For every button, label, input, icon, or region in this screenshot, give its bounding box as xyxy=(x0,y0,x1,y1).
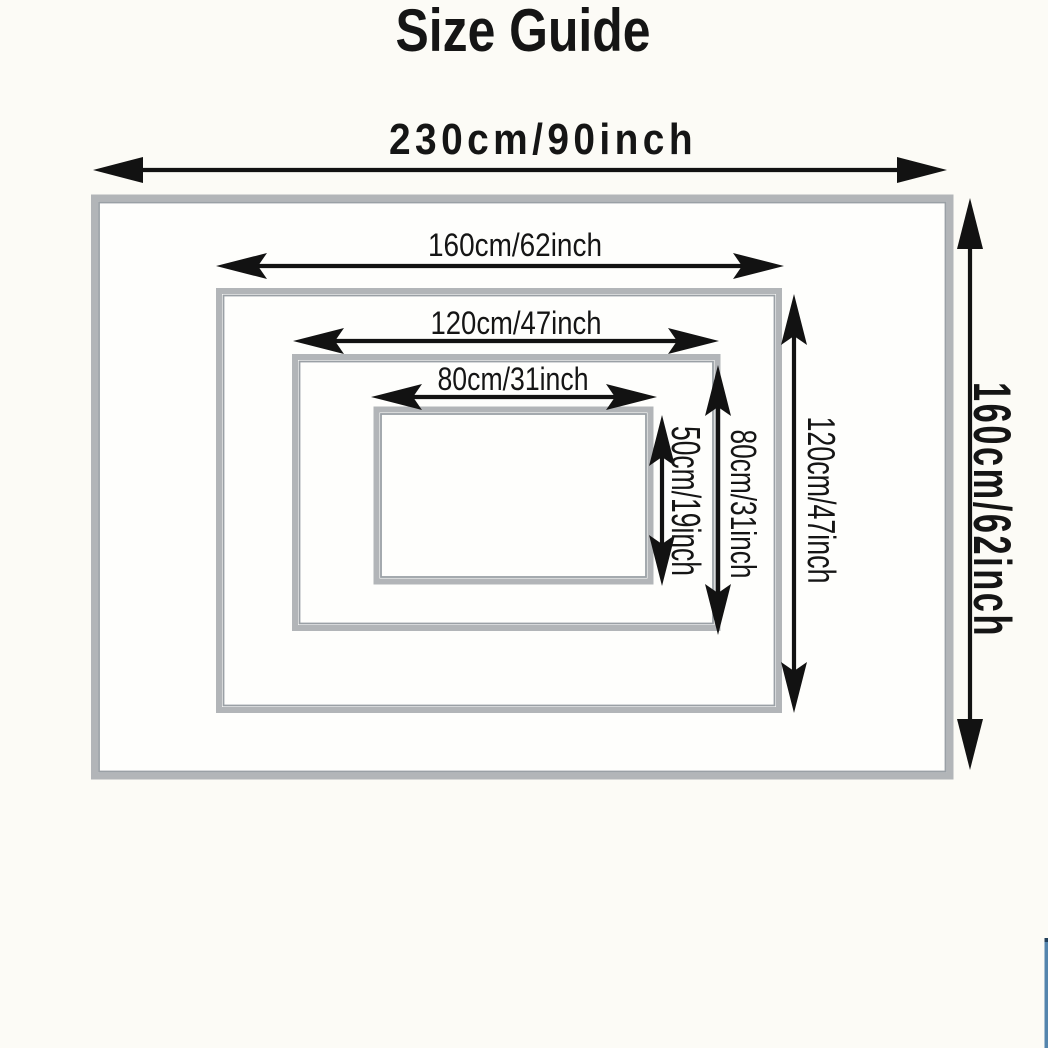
svg-text:80cm/31inch: 80cm/31inch xyxy=(723,430,764,579)
svg-text:160cm/62inch: 160cm/62inch xyxy=(428,227,602,263)
svg-text:230cm/90inch: 230cm/90inch xyxy=(389,115,697,164)
svg-text:160cm/62inch: 160cm/62inch xyxy=(962,382,1021,638)
svg-text:80cm/31inch: 80cm/31inch xyxy=(438,361,589,397)
svg-text:50cm/19inch: 50cm/19inch xyxy=(663,426,709,576)
svg-text:120cm/47inch: 120cm/47inch xyxy=(431,305,602,341)
svg-text:Size Guide: Size Guide xyxy=(396,0,651,64)
svg-text:120cm/47inch: 120cm/47inch xyxy=(799,417,842,584)
